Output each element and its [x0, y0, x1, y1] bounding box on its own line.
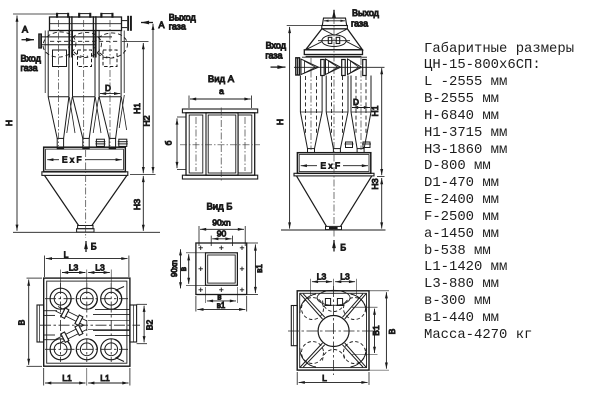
svg-text:Выход: Выход [352, 8, 380, 18]
svg-text:газа: газа [351, 18, 368, 28]
svg-text:Вход: Вход [266, 40, 287, 50]
svg-text:D: D [353, 98, 359, 107]
svg-text:F: F [77, 156, 82, 165]
svg-text:L3: L3 [340, 272, 350, 282]
svg-text:Н1: Н1 [132, 103, 142, 114]
svg-text:Б: Б [340, 242, 346, 252]
svg-text:х: х [329, 162, 333, 171]
svg-text:Н: Н [275, 119, 285, 125]
svg-text:90: 90 [217, 228, 227, 238]
svg-text:А: А [22, 24, 28, 34]
svg-text:а: а [219, 86, 224, 96]
svg-text:НЗ: НЗ [370, 178, 380, 189]
svg-text:газа: газа [169, 21, 186, 31]
svg-text:90хn: 90хn [170, 260, 179, 277]
svg-text:б: б [163, 140, 173, 145]
svg-text:газа: газа [265, 51, 282, 61]
svg-text:В2: В2 [145, 320, 155, 331]
svg-text:L: L [64, 249, 69, 259]
svg-text:Вид А: Вид А [208, 74, 235, 85]
svg-text:Н: Н [4, 120, 14, 126]
svg-text:Б: Б [91, 241, 97, 251]
svg-text:в1: в1 [255, 264, 264, 272]
svg-text:А: А [159, 20, 165, 30]
svg-text:90хn: 90хn [212, 217, 231, 227]
svg-text:L1: L1 [100, 373, 110, 383]
svg-text:Н2: Н2 [141, 115, 151, 126]
svg-text:Вид Б: Вид Б [206, 202, 232, 213]
svg-text:Н1: Н1 [370, 105, 380, 116]
svg-text:В1: В1 [371, 325, 381, 336]
svg-text:L3: L3 [95, 263, 105, 273]
svg-text:газа: газа [21, 63, 38, 73]
svg-text:В: В [387, 328, 397, 334]
svg-text:Вход: Вход [21, 53, 42, 63]
svg-text:L1: L1 [62, 373, 72, 383]
svg-text:х: х [70, 156, 74, 165]
svg-text:L: L [322, 373, 327, 383]
svg-text:в1: в1 [217, 301, 225, 310]
svg-text:F: F [335, 162, 340, 171]
svg-text:НЗ: НЗ [132, 199, 142, 210]
svg-text:В: В [17, 319, 27, 325]
svg-text:L3: L3 [317, 272, 327, 282]
svg-text:L3: L3 [69, 263, 79, 273]
svg-text:Е: Е [321, 162, 327, 171]
svg-text:Е: Е [62, 156, 68, 165]
